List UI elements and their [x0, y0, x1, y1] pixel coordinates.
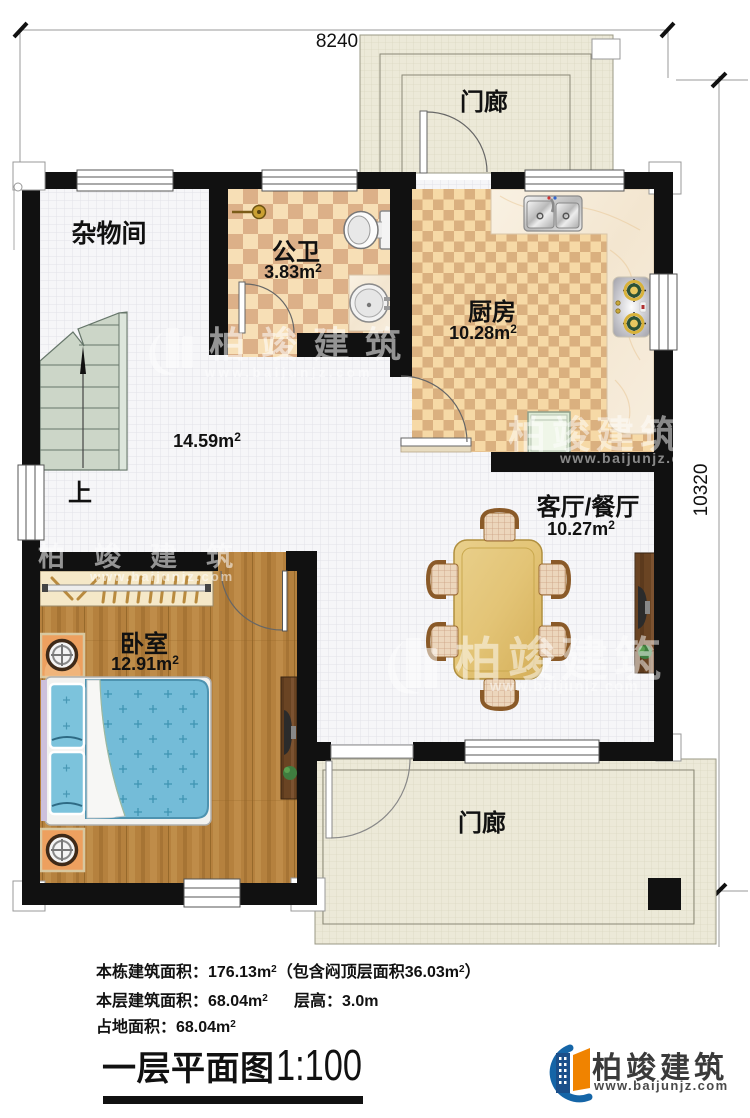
svg-text:8240: 8240: [316, 31, 358, 52]
svg-text:柏竣建筑: 柏竣建筑: [38, 541, 262, 572]
svg-text:www.baijunjz.com: www.baijunjz.com: [559, 450, 705, 466]
svg-text:本栋建筑面积：176.13m2（包含闷顶层面积36.03m2: 本栋建筑面积：176.13m2（包含闷顶层面积36.03m2）: [96, 962, 481, 981]
svg-text:层高：3.0m: 层高：3.0m: [294, 991, 378, 1010]
svg-text:门廊: 门廊: [458, 809, 506, 837]
svg-text:门廊: 门廊: [460, 88, 508, 116]
svg-text:杂物间: 杂物间: [71, 220, 146, 248]
svg-text:10.28m2: 10.28m2: [449, 322, 517, 343]
svg-text:一层平面图: 一层平面图: [102, 1050, 275, 1088]
svg-text:柏竣建筑: 柏竣建筑: [209, 324, 417, 365]
svg-text:本层建筑面积：68.04m2: 本层建筑面积：68.04m2: [96, 991, 268, 1010]
svg-text:www.baijunjz.com: www.baijunjz.com: [89, 569, 234, 584]
svg-text:1:100: 1:100: [276, 1041, 362, 1090]
svg-text:客厅/餐厅: 客厅/餐厅: [537, 493, 640, 521]
svg-text:www.baijunjz.com: www.baijunjz.com: [204, 365, 373, 380]
svg-text:www.baijunjz.com: www.baijunjz.com: [489, 679, 639, 695]
svg-text:3.83m2: 3.83m2: [264, 261, 322, 282]
svg-text:10.27m2: 10.27m2: [547, 518, 615, 539]
svg-text:10320: 10320: [691, 464, 712, 517]
svg-text:厨房: 厨房: [468, 298, 516, 326]
svg-text:14.59m2: 14.59m2: [173, 430, 241, 451]
svg-text:占地面积：68.04m2: 占地面积：68.04m2: [96, 1017, 236, 1036]
svg-text:www.baijunjz.com: www.baijunjz.com: [593, 1078, 729, 1093]
svg-text:上: 上: [68, 480, 92, 507]
svg-text:12.91m2: 12.91m2: [111, 653, 179, 674]
